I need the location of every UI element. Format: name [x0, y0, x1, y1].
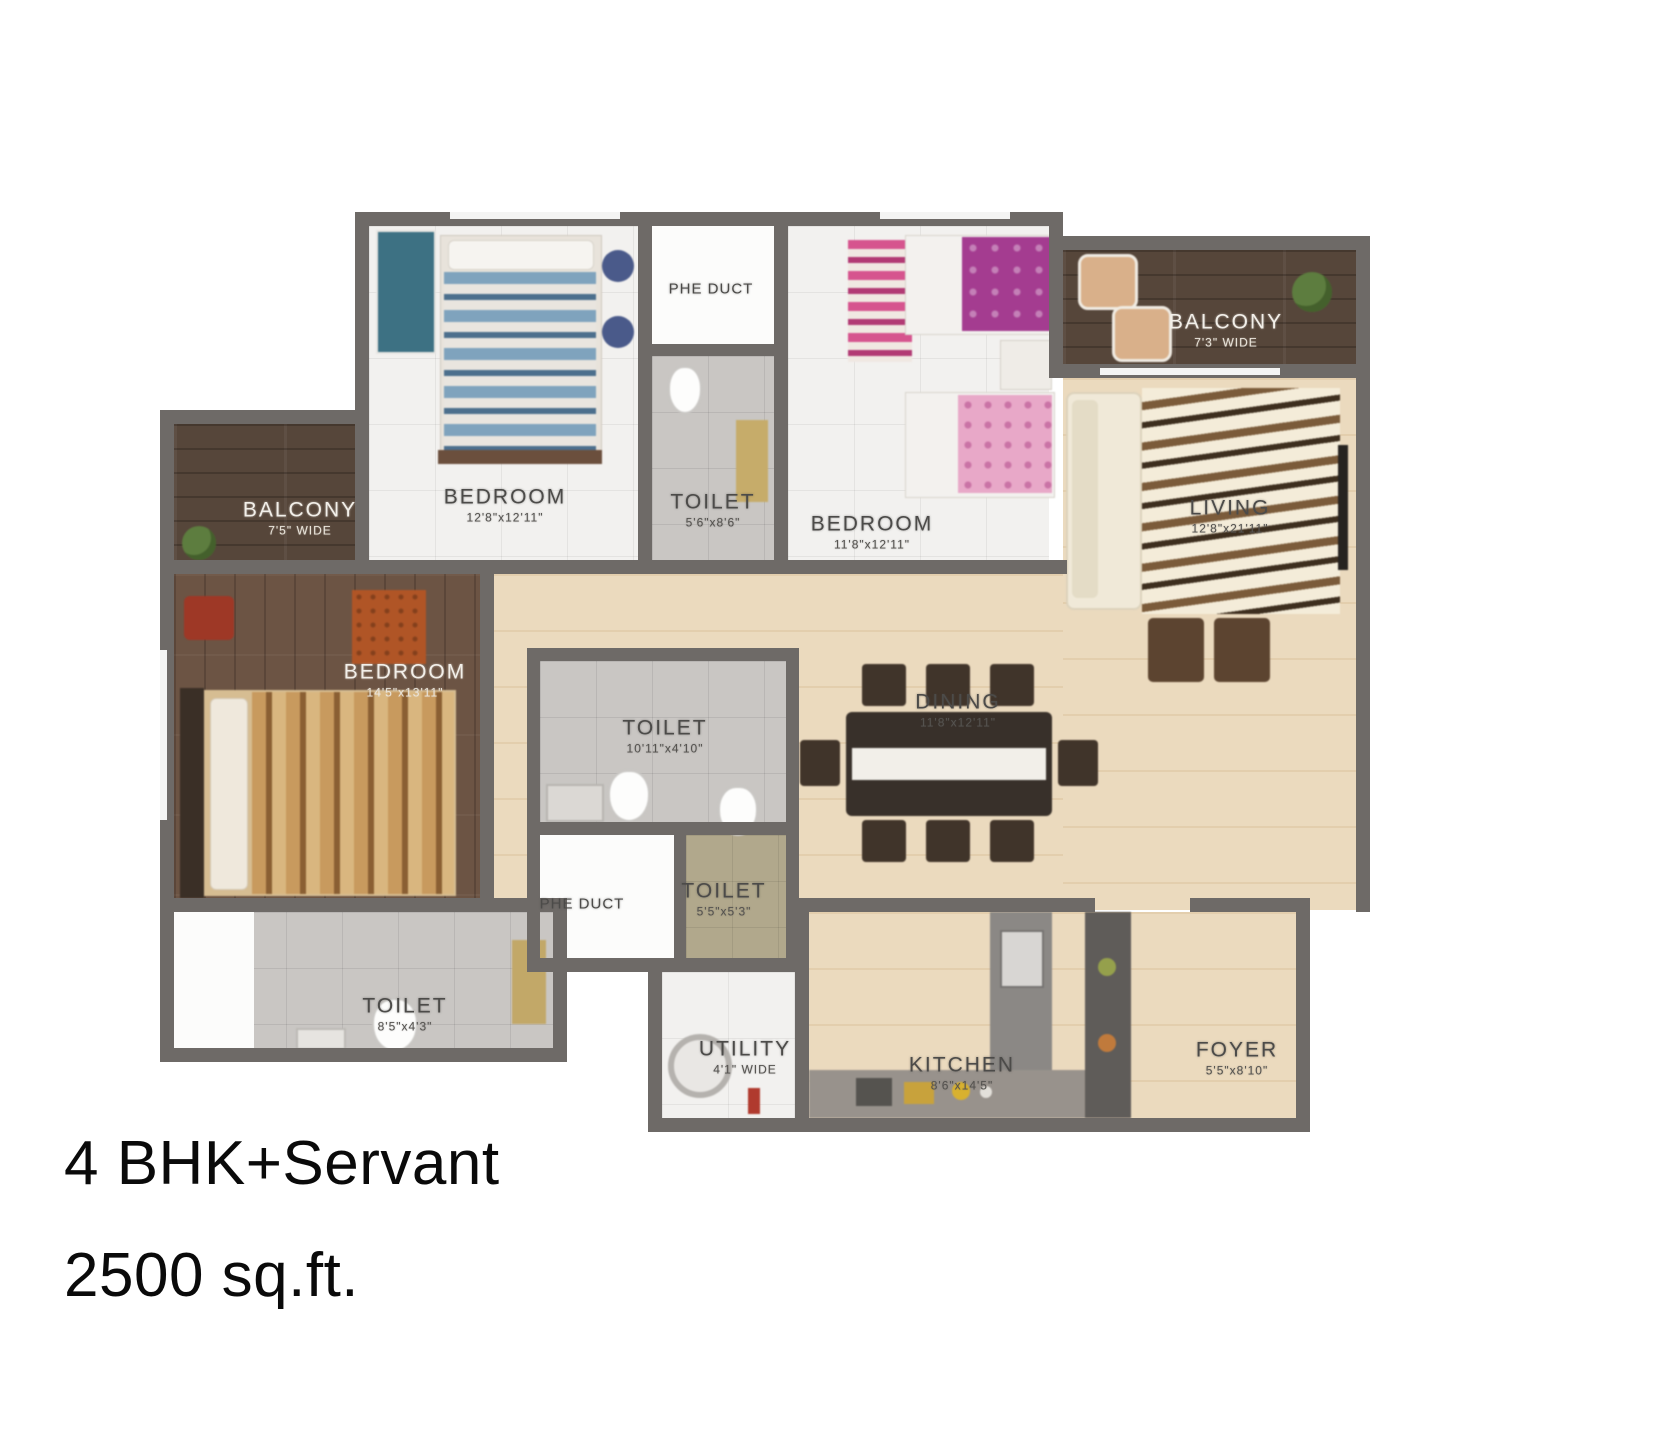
foyer-cabinet [1085, 912, 1131, 1118]
sofa-cushion [1072, 400, 1098, 598]
toilet-fixture [372, 998, 418, 1052]
rug-wavy [1142, 388, 1340, 614]
cabinet-knob [1098, 958, 1116, 976]
kitchen-dish [952, 1082, 970, 1100]
wall [1356, 236, 1370, 912]
wall [795, 898, 1095, 912]
dining-chair [990, 664, 1034, 706]
toilet-fixture [668, 366, 702, 414]
bed-blanket-magenta [962, 237, 1052, 331]
window [880, 212, 1010, 219]
bed-footboard [438, 450, 602, 464]
wall [355, 212, 369, 574]
balcony-chair [1078, 254, 1138, 310]
bed-pillows [448, 240, 594, 270]
wall [638, 212, 652, 574]
bed-double-headboard [180, 688, 204, 898]
plan-title: 4 BHK+Servant [64, 1128, 500, 1199]
dining-chair [862, 664, 906, 706]
bed-blanket-pink [958, 395, 1052, 493]
toilet-4-shower-floor [174, 912, 254, 1048]
wall [648, 1118, 1310, 1132]
ottoman [1148, 618, 1204, 682]
stool-blue [602, 316, 634, 348]
plant-icon [182, 526, 216, 560]
wall [1296, 898, 1310, 1132]
toilet-sink [546, 784, 604, 822]
cabinet-knob [1098, 1034, 1116, 1052]
stool-blue [602, 250, 634, 282]
wall [480, 560, 494, 912]
wall [160, 1048, 567, 1062]
floor-plan-canvas: BEDROOM12'8"x12'11" PHE DUCT TOILET5'6"x… [0, 0, 1672, 1440]
wall [648, 958, 662, 1132]
nightstand [1000, 340, 1052, 390]
dining-chair [1058, 740, 1098, 786]
bed-blanket-tan [252, 692, 454, 894]
wall [527, 822, 793, 835]
cushions-red [184, 596, 234, 640]
dining-chair [800, 740, 840, 786]
wall [774, 212, 788, 574]
window [1100, 368, 1280, 375]
wall [1190, 898, 1310, 912]
rug-orange [352, 590, 426, 664]
ottoman [1214, 618, 1270, 682]
wall [160, 560, 369, 574]
wall [674, 822, 686, 972]
kitchen-tray [904, 1082, 934, 1104]
wall [527, 648, 540, 972]
phe-duct-1-floor [652, 226, 774, 344]
kitchen-sink [1000, 930, 1044, 988]
wall [1049, 212, 1063, 378]
window [160, 650, 167, 820]
dining-table-runner [852, 748, 1046, 780]
vanity-counter [736, 420, 768, 502]
dining-chair [990, 820, 1034, 862]
bed-pillows [210, 698, 248, 890]
wall [795, 912, 809, 1132]
wall [160, 898, 567, 912]
wall [160, 410, 369, 424]
toilet-3-floor [686, 835, 786, 958]
tv-panel [1338, 445, 1348, 570]
window [450, 212, 620, 219]
bed-blanket-blue [444, 272, 596, 450]
dining-chair [926, 820, 970, 862]
wall [527, 648, 793, 661]
plant-icon [1292, 272, 1332, 312]
kitchen-dish [980, 1086, 992, 1098]
wall [1052, 236, 1370, 250]
wall [553, 898, 567, 1062]
balcony-chair [1112, 306, 1172, 362]
rug-pink-striped [848, 240, 912, 362]
toilet-fixture [608, 770, 650, 822]
plan-area: 2500 sq.ft. [64, 1240, 359, 1311]
wall [527, 958, 800, 972]
washing-machine [668, 1034, 732, 1098]
wall [638, 344, 788, 356]
dining-chair [862, 820, 906, 862]
kitchen-hob [856, 1078, 892, 1106]
detergent-bottle [748, 1088, 760, 1114]
wall [355, 560, 1067, 574]
wardrobe [376, 230, 436, 354]
dining-chair [926, 664, 970, 706]
toilet-sink [296, 1028, 346, 1050]
